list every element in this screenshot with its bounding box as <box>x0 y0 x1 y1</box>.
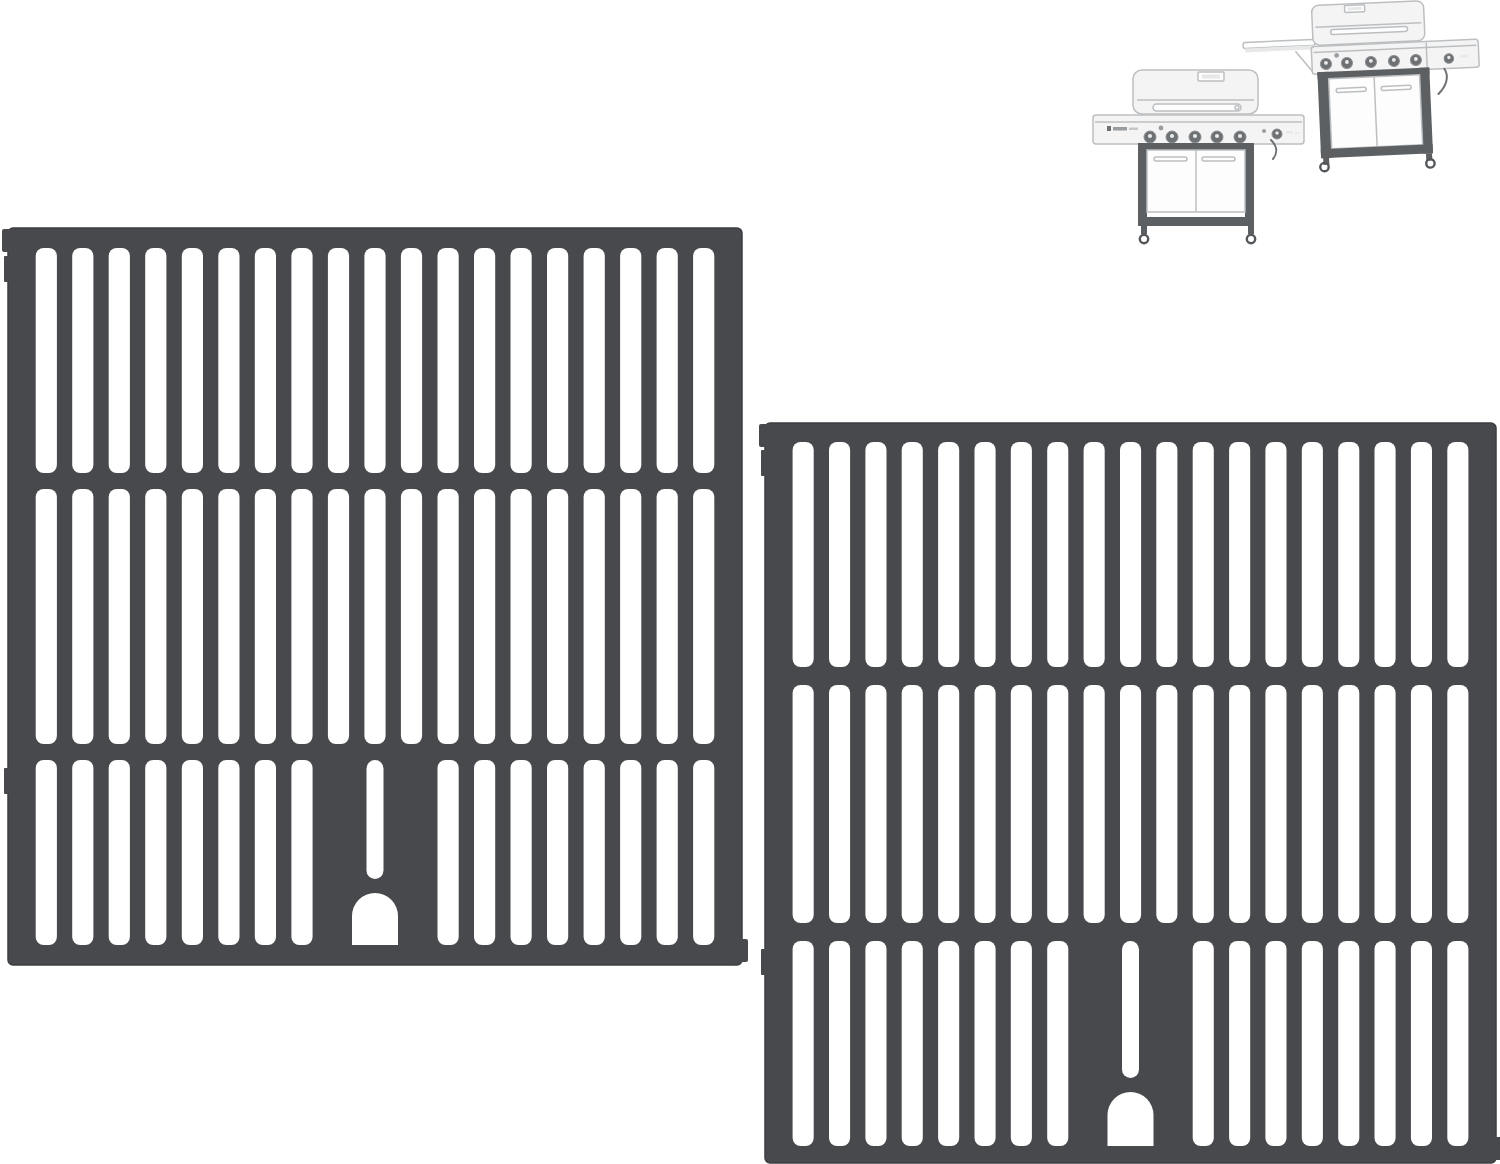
grill-grate-right <box>765 423 1496 1163</box>
caster-wheel <box>1247 235 1255 243</box>
product-image <box>0 0 1500 1164</box>
caster-wheel <box>1320 163 1329 172</box>
grill-lid <box>1311 1 1425 46</box>
caster-wheel <box>1426 159 1435 168</box>
grill-lid <box>1133 70 1258 114</box>
caster-wheel <box>1140 235 1148 243</box>
grill-thumbnail-front <box>1085 58 1315 248</box>
cart <box>1138 143 1255 243</box>
grill-grate-left <box>8 228 742 965</box>
cart <box>1316 67 1435 172</box>
gas-hose <box>1437 69 1447 94</box>
control-panel <box>1093 115 1304 144</box>
